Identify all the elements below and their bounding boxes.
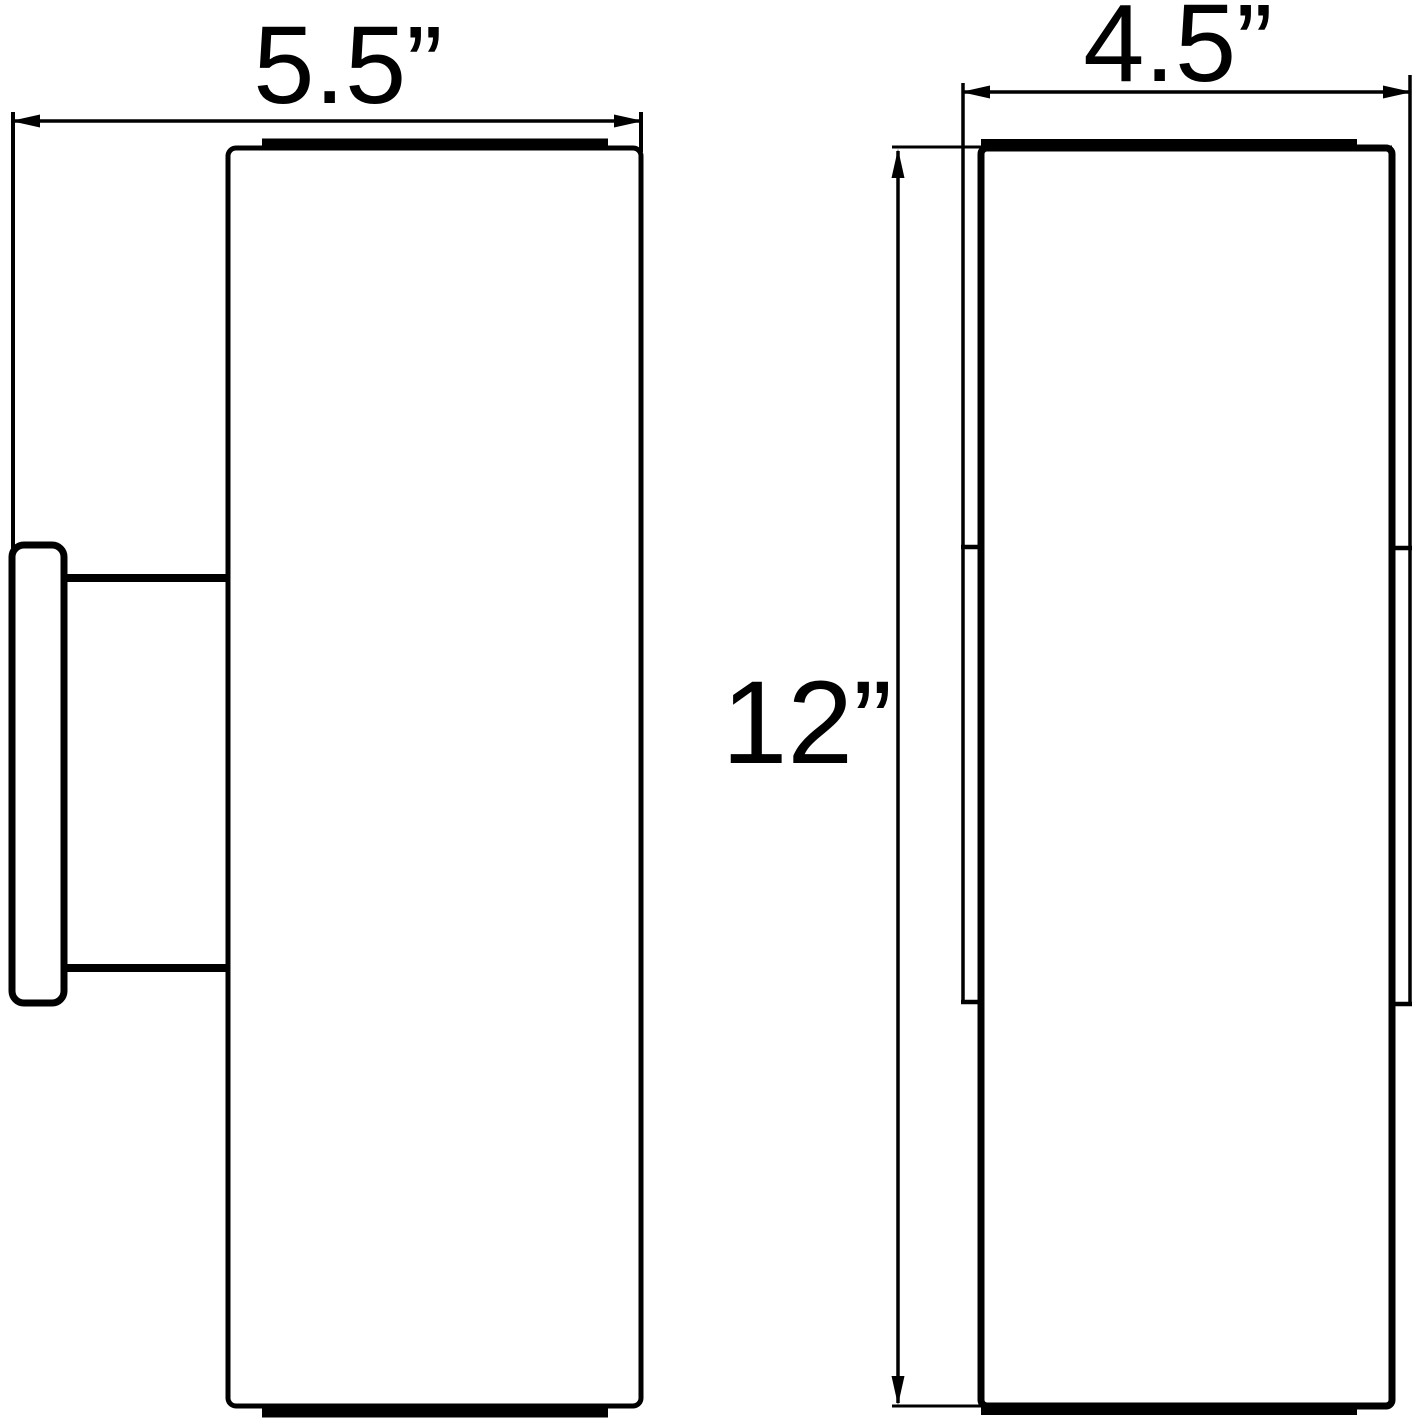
arrowhead-left-icon bbox=[961, 86, 990, 99]
arrowhead-up-icon bbox=[892, 149, 905, 178]
front-width-dimension: 4.5” bbox=[961, 0, 1412, 105]
arrowhead-down-icon bbox=[892, 1376, 905, 1405]
height-label: 12” bbox=[722, 657, 893, 789]
front-width-label: 4.5” bbox=[1083, 0, 1273, 105]
front-view: 4.5” 12” bbox=[722, 0, 1412, 1410]
cylinder-body-side bbox=[228, 148, 641, 1406]
arrowhead-right-icon bbox=[614, 115, 643, 128]
mounting-plate-side bbox=[12, 545, 64, 1003]
side-depth-label: 5.5” bbox=[253, 4, 443, 127]
wall-sconce-dimension-drawing: 5.5” 4.5” bbox=[0, 0, 1424, 1424]
mounting-arm bbox=[62, 578, 228, 968]
arrowhead-right-icon bbox=[1383, 86, 1412, 99]
side-view: 5.5” bbox=[11, 4, 643, 1413]
arrowhead-left-icon bbox=[11, 115, 40, 128]
technical-drawing-page: 5.5” 4.5” bbox=[0, 0, 1424, 1424]
cylinder-body-front bbox=[981, 148, 1392, 1406]
